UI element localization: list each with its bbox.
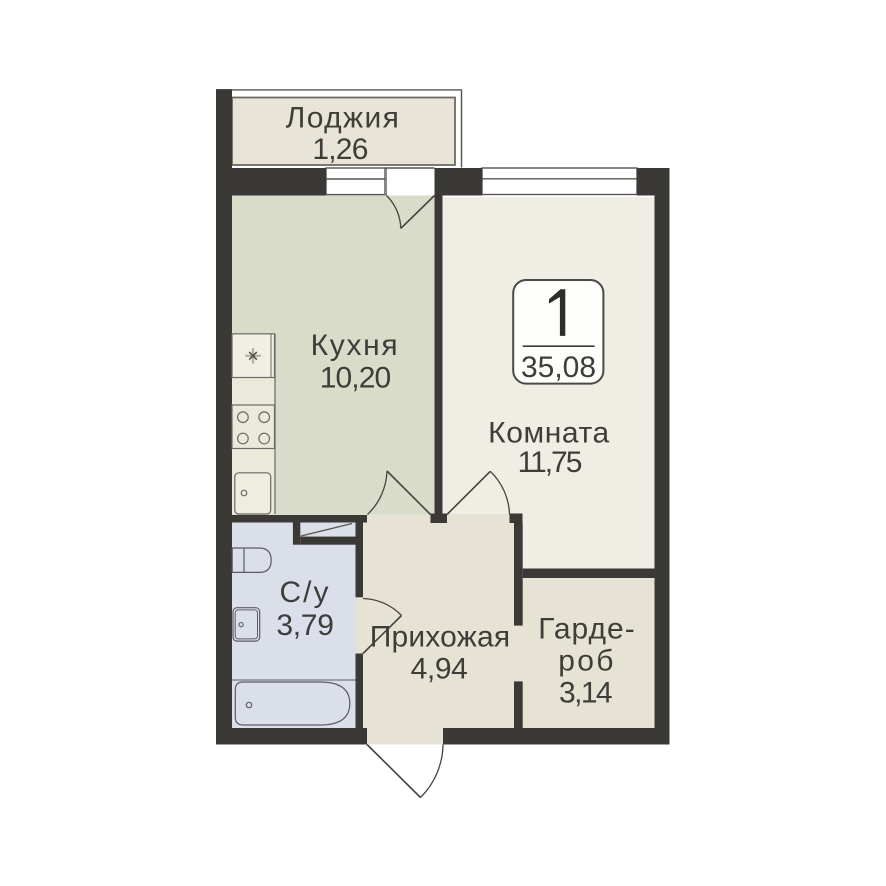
svg-text:1,26: 1,26 [312, 133, 367, 166]
svg-text:Гарде-: Гарде- [538, 613, 635, 646]
svg-text:10,20: 10,20 [320, 362, 391, 395]
svg-text:Комната: Комната [488, 417, 610, 450]
svg-text:4,94: 4,94 [411, 653, 468, 686]
svg-text:3,79: 3,79 [276, 609, 333, 642]
svg-text:С/у: С/у [280, 576, 331, 609]
svg-text:Лоджия: Лоджия [286, 102, 401, 135]
svg-text:35,08: 35,08 [521, 351, 596, 384]
svg-text:роб: роб [558, 645, 615, 678]
svg-text:Кухня: Кухня [311, 329, 400, 362]
svg-text:3,14: 3,14 [559, 677, 612, 710]
svg-text:11,75: 11,75 [518, 446, 582, 479]
